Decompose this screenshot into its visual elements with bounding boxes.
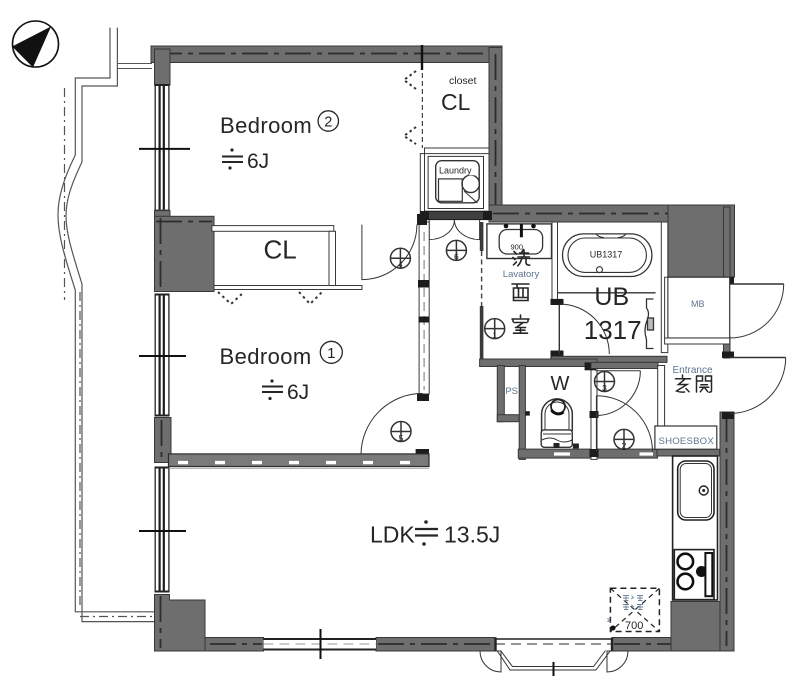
svg-text:2: 2 <box>324 115 332 131</box>
svg-text:PS: PS <box>505 386 518 397</box>
svg-text:UB: UB <box>594 283 629 311</box>
svg-text:1: 1 <box>492 330 497 340</box>
svg-text:1317: 1317 <box>584 315 642 345</box>
svg-text:6J: 6J <box>287 381 309 404</box>
svg-text:6J: 6J <box>247 150 269 173</box>
svg-text:closet: closet <box>449 75 477 87</box>
svg-text:3: 3 <box>602 383 607 393</box>
svg-text:UB1317: UB1317 <box>590 250 623 260</box>
svg-text:5: 5 <box>399 433 404 443</box>
svg-text:6: 6 <box>454 252 459 262</box>
svg-text:Bedroom: Bedroom <box>220 113 312 138</box>
svg-text:1: 1 <box>327 345 335 362</box>
svg-text:LDK: LDK <box>370 522 415 548</box>
svg-text:Bedroom: Bedroom <box>220 344 312 369</box>
svg-text:4: 4 <box>398 260 403 270</box>
svg-text:W: W <box>551 373 570 395</box>
svg-text:900: 900 <box>511 243 524 252</box>
svg-text:CL: CL <box>441 89 471 115</box>
svg-text:Laundry: Laundry <box>439 166 472 176</box>
svg-text:CL: CL <box>264 235 297 265</box>
svg-text:2: 2 <box>622 441 627 451</box>
svg-text:700: 700 <box>625 620 643 632</box>
svg-text:Lavatory: Lavatory <box>503 269 540 280</box>
svg-text:SHOESBOX: SHOESBOX <box>659 436 715 447</box>
svg-text:13.5J: 13.5J <box>444 522 500 548</box>
svg-text:MB: MB <box>691 299 705 309</box>
svg-text:Entrance: Entrance <box>673 365 713 376</box>
